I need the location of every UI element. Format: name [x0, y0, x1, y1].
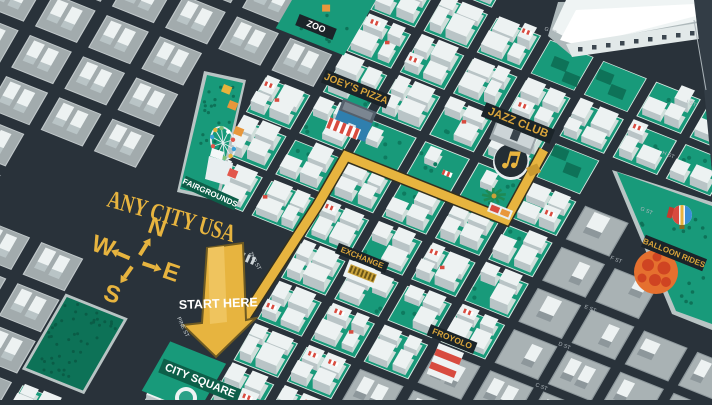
svg-text:START HERE: START HERE	[179, 295, 258, 312]
